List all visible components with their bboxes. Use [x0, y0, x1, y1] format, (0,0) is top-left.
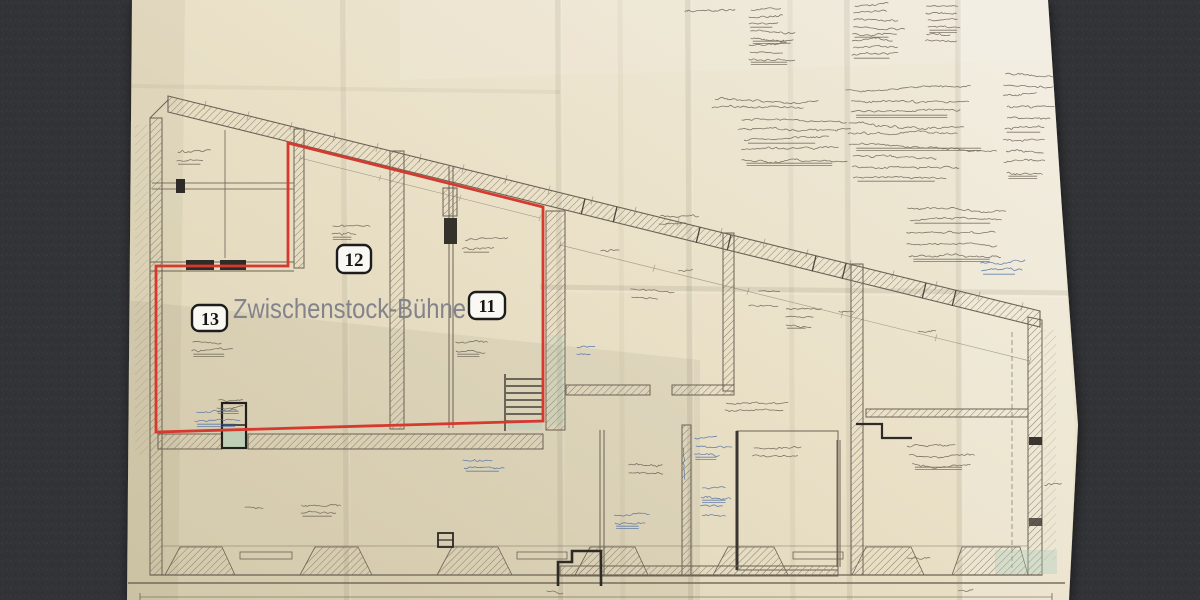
- area-label-text: 13: [201, 309, 219, 329]
- floor-plan-photo: Zwischenstock-Bühne 12 13 11: [0, 0, 1200, 600]
- overlay-title: Zwischenstock-Bühne: [233, 293, 466, 324]
- area-label-text: 12: [345, 250, 364, 271]
- area-label-12: 12: [337, 245, 371, 273]
- floor-plan-photo-canvas: Zwischenstock-Bühne 12 13 11: [0, 0, 1200, 600]
- area-label-13: 13: [192, 305, 227, 331]
- area-label-11: 11: [469, 292, 505, 319]
- area-label-text: 11: [478, 296, 495, 316]
